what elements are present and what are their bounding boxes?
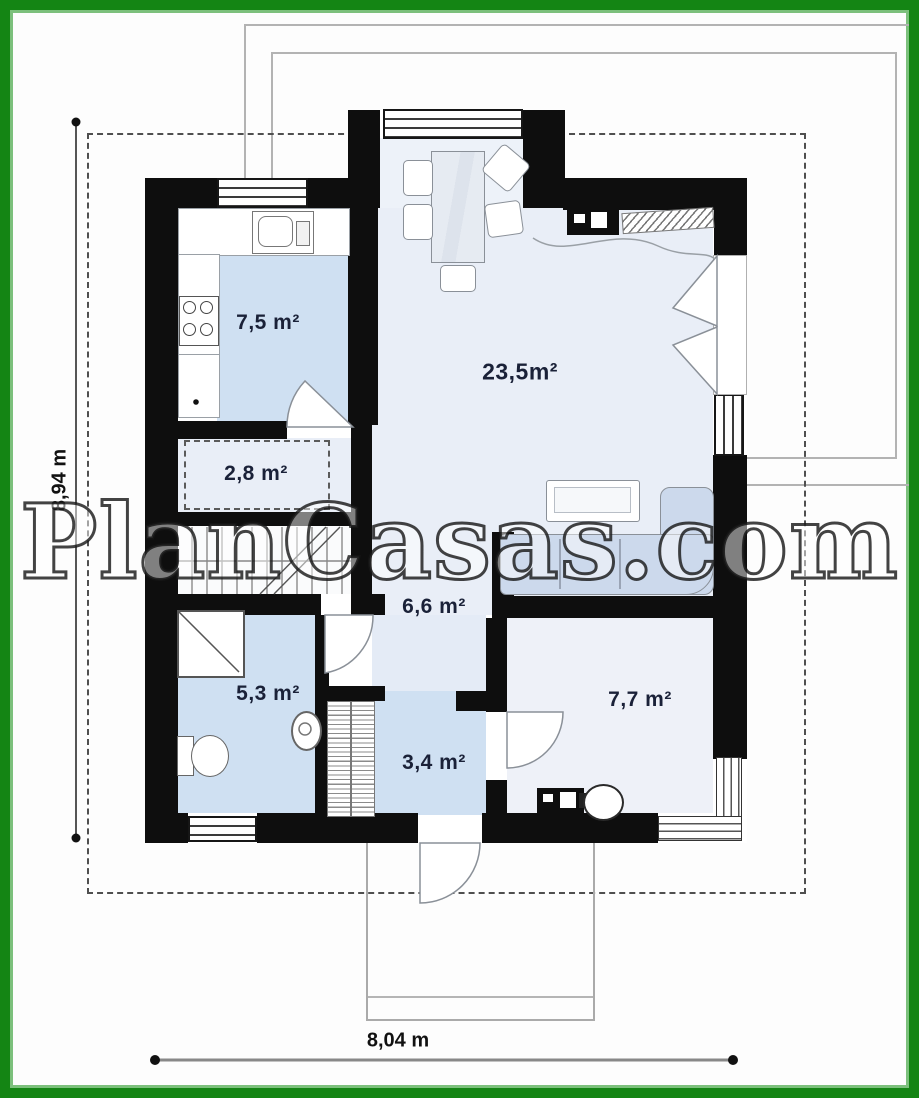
porch-outline bbox=[366, 843, 595, 1021]
entrance-arrow-icon bbox=[434, 848, 464, 866]
exterior-wall-bottom-b bbox=[257, 813, 367, 843]
sink-icon bbox=[291, 711, 322, 751]
room-label-bedroom: 7,7 m² bbox=[608, 688, 672, 712]
exterior-wall-right-a bbox=[714, 208, 747, 257]
dining-chair bbox=[440, 265, 476, 292]
fireplace-detail bbox=[591, 212, 607, 228]
dimension-endpoint bbox=[72, 834, 81, 843]
wall-hall-stub bbox=[351, 594, 385, 615]
bathroom-window bbox=[188, 816, 257, 842]
sofa-cushion-line bbox=[619, 539, 621, 589]
wall-bedroom-b bbox=[486, 780, 507, 815]
exterior-wall-bottom-c bbox=[367, 813, 418, 843]
kitchen-cabinet bbox=[178, 354, 220, 418]
bedroom-corner-window-vertical bbox=[716, 757, 742, 818]
vertical-dimension-label: 8,94 m bbox=[49, 449, 72, 511]
bedroom-floor bbox=[507, 618, 713, 813]
horizontal-dimension-label: 8,04 m bbox=[367, 1030, 429, 1053]
wall-kitchen-storage bbox=[145, 421, 287, 439]
exterior-wall-top-a bbox=[145, 178, 217, 210]
room-label-hall: 6,6 m² bbox=[402, 595, 466, 619]
wall-wardrobe-top bbox=[327, 686, 385, 701]
porch-step-line bbox=[368, 996, 593, 998]
dining-chair bbox=[484, 200, 524, 239]
room-label-living: 23,5m² bbox=[482, 359, 558, 386]
hall-floor bbox=[372, 425, 492, 615]
sink-bowl bbox=[258, 216, 293, 247]
corridor-floor bbox=[372, 615, 486, 691]
bay-wall-right bbox=[523, 110, 565, 208]
kitchen-sink-icon bbox=[252, 211, 314, 254]
washer-detail bbox=[543, 794, 553, 802]
exterior-wall-bottom-d bbox=[482, 813, 658, 843]
kitchen-floor bbox=[217, 254, 348, 421]
wall-kitchen-living bbox=[348, 208, 378, 425]
sofa-cushion-line bbox=[559, 539, 561, 589]
room-label-kitchen: 7,5 m² bbox=[236, 311, 300, 335]
wardrobe-icon bbox=[327, 701, 375, 817]
wall-living-bottom bbox=[492, 596, 743, 618]
exterior-wall-left bbox=[145, 178, 178, 843]
fireplace-icon bbox=[567, 207, 619, 235]
bay-window bbox=[383, 109, 523, 139]
dimension-endpoint bbox=[150, 1055, 160, 1065]
washer-icon bbox=[537, 788, 584, 815]
wardrobe-rail bbox=[350, 702, 352, 816]
washer-detail bbox=[560, 792, 576, 808]
stove-icon bbox=[179, 296, 219, 346]
wall-hall-jog bbox=[456, 691, 507, 711]
bay-wall-left bbox=[348, 110, 380, 208]
fireplace-detail bbox=[574, 214, 585, 223]
stove-burner bbox=[200, 301, 213, 314]
terrace-door-sill bbox=[713, 255, 747, 395]
room-label-bathroom: 5,3 m² bbox=[236, 682, 300, 706]
toilet-icon bbox=[191, 735, 229, 777]
dining-chair bbox=[403, 204, 433, 240]
stove-burner bbox=[183, 323, 196, 336]
dimension-endpoint bbox=[728, 1055, 738, 1065]
kitchen-window bbox=[217, 178, 308, 208]
room-label-entry: 3,4 m² bbox=[402, 751, 466, 775]
coffee-table-icon bbox=[546, 480, 640, 522]
coffee-table-top bbox=[554, 487, 631, 513]
dining-chair bbox=[403, 160, 433, 196]
stove-burner bbox=[200, 323, 213, 336]
bedroom-corner-window-horizontal bbox=[658, 816, 742, 841]
dining-table-icon bbox=[431, 151, 485, 263]
stairs-floor bbox=[178, 526, 351, 594]
exterior-wall-bottom-a bbox=[145, 813, 188, 843]
living-side-window bbox=[714, 394, 744, 456]
boiler-icon bbox=[583, 784, 624, 821]
shower-icon bbox=[177, 610, 245, 678]
wall-storage-right bbox=[351, 421, 372, 613]
stove-burner bbox=[183, 301, 196, 314]
room-label-storage: 2,8 m² bbox=[224, 462, 288, 486]
wall-storage-bottom bbox=[145, 512, 351, 526]
dimension-endpoint bbox=[72, 118, 81, 127]
sink-drainer bbox=[296, 221, 310, 246]
exterior-wall-top-c bbox=[563, 178, 747, 210]
floor-plan-canvas: 7,5 m² 23,5m² 2,8 m² 6,6 m² 5,3 m² 3,4 m… bbox=[0, 0, 919, 1098]
sofa-icon bbox=[500, 534, 714, 595]
exterior-wall-top-b bbox=[306, 178, 350, 210]
